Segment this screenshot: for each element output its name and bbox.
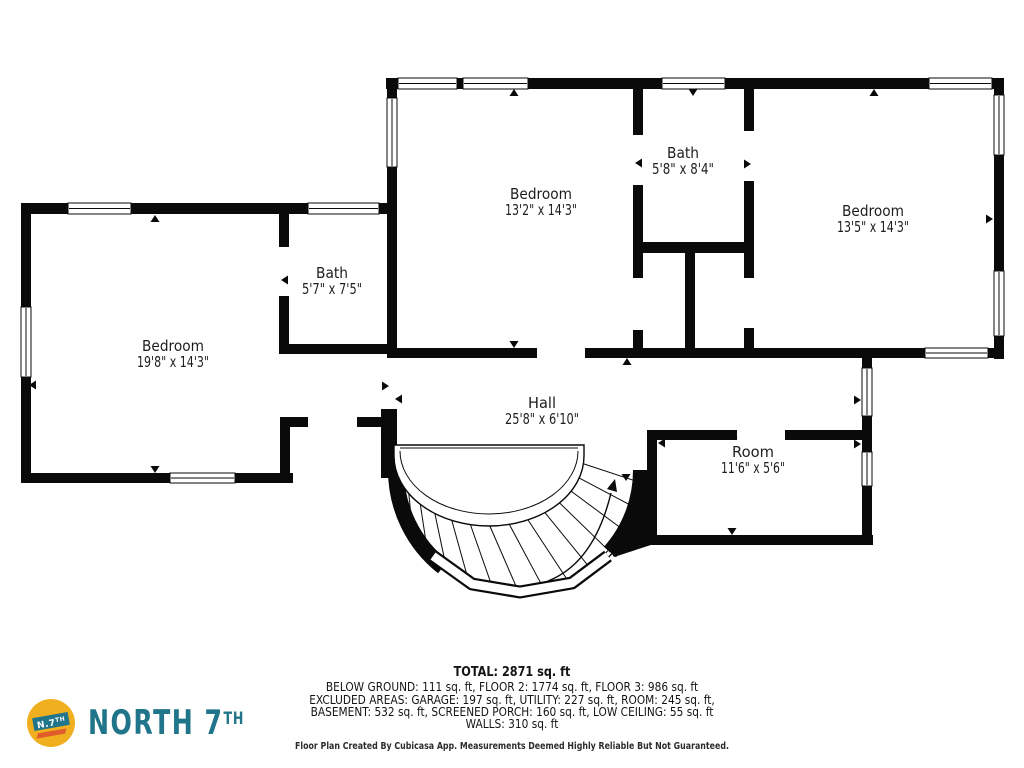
door-swing-marker bbox=[854, 396, 861, 405]
wall-segment bbox=[633, 242, 754, 253]
door-swing-marker bbox=[689, 89, 698, 96]
door-opening bbox=[278, 247, 290, 296]
staircase bbox=[394, 445, 657, 595]
door-swing-marker bbox=[151, 466, 160, 473]
wall-segment bbox=[387, 348, 1004, 358]
door-swing-marker bbox=[986, 215, 993, 224]
floor-plan-page: Bedroom 13'2" x 14'3" Bath 5'8" x 8'4" B… bbox=[0, 0, 1024, 768]
stair-step-line bbox=[581, 463, 641, 483]
badge-sup: TH bbox=[55, 716, 66, 725]
wall-segment bbox=[647, 535, 873, 545]
door-opening bbox=[743, 131, 755, 181]
stair-step-line bbox=[558, 502, 610, 553]
door-swing-marker bbox=[622, 474, 631, 481]
stair-step-line bbox=[577, 477, 636, 508]
door-opening bbox=[308, 416, 357, 429]
room-dims-bedroom-middle: 13'2" x 14'3" bbox=[505, 201, 577, 219]
door-swing-marker bbox=[151, 215, 160, 222]
door-opening bbox=[537, 347, 585, 359]
door-swing-marker bbox=[728, 528, 737, 535]
room-dims-room: 11'6" x 5'6" bbox=[721, 459, 785, 477]
door-opening bbox=[632, 135, 644, 185]
door-swing-marker bbox=[870, 89, 879, 96]
door-swing-marker bbox=[623, 358, 632, 365]
door-swing-marker bbox=[382, 382, 389, 391]
door-swing-marker bbox=[510, 341, 519, 348]
badge-text: N.7 bbox=[36, 718, 56, 731]
wall-segment bbox=[280, 417, 290, 475]
north7th-badge-icon: N.7TH bbox=[27, 699, 75, 747]
stair-step-line bbox=[544, 511, 592, 569]
door-opening bbox=[632, 278, 644, 330]
room-dims-hall: 25'8" x 6'10" bbox=[505, 410, 579, 428]
wordmark-sup: TH bbox=[224, 709, 245, 729]
room-labels: Bedroom 13'2" x 14'3" Bath 5'8" x 8'4" B… bbox=[137, 144, 909, 477]
wall-segment bbox=[21, 473, 293, 483]
north7th-wordmark: NORTH 7TH bbox=[88, 703, 244, 743]
floor-plan-drawing: Bedroom 13'2" x 14'3" Bath 5'8" x 8'4" B… bbox=[0, 0, 1024, 768]
door-swing-marker bbox=[854, 440, 861, 449]
room-dims-bath-top: 5'8" x 8'4" bbox=[652, 160, 714, 178]
room-dims-bedroom-right: 13'5" x 14'3" bbox=[837, 218, 909, 236]
wall-segment bbox=[685, 253, 695, 358]
wordmark-main: NORTH 7 bbox=[88, 703, 224, 743]
door-swing-marker bbox=[395, 395, 402, 404]
room-dims-bath-left: 5'7" x 7'5" bbox=[302, 280, 362, 298]
door-swing-marker bbox=[510, 89, 519, 96]
stair-step-line bbox=[570, 490, 626, 532]
stairs-direction-arrow-head bbox=[607, 479, 617, 492]
room-dims-bedroom-left: 19'8" x 14'3" bbox=[137, 353, 209, 371]
door-opening bbox=[737, 429, 785, 441]
total-area-text: TOTAL: 2871 sq. ft bbox=[82, 667, 942, 679]
north7th-logo: N.7TH NORTH 7TH bbox=[27, 698, 299, 748]
door-opening bbox=[743, 278, 755, 328]
